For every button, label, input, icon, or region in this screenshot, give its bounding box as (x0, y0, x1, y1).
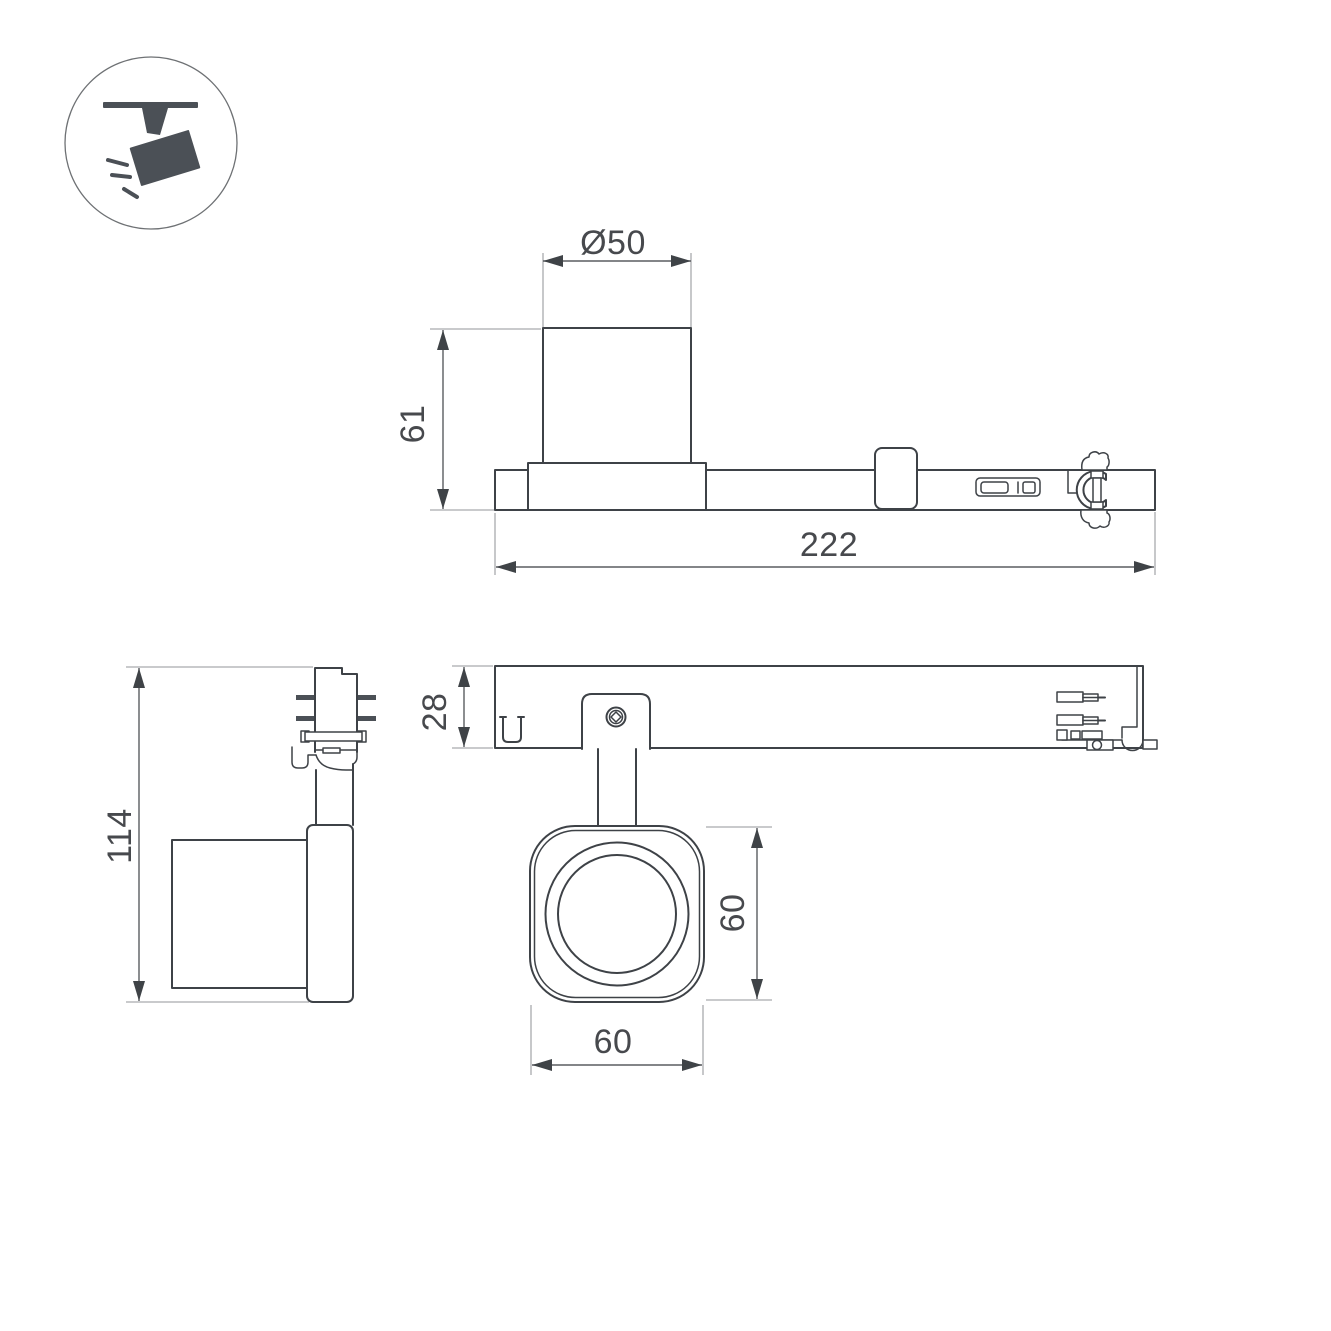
front-view-drawing: 60 60 (530, 826, 772, 1075)
dim-label-depth-28: 28 (416, 693, 454, 732)
end-view-drawing: 114 (101, 667, 376, 1002)
side-view-drawing: Ø50 61 222 (394, 224, 1155, 575)
dim-label-head-height-60: 60 (714, 894, 752, 933)
dim-label-length-222: 222 (800, 526, 858, 564)
plan-view-drawing: 28 (416, 666, 1157, 826)
dim-label-total-height-114: 114 (101, 808, 139, 864)
dimension-drawing-page: Ø50 61 222 (0, 0, 1331, 1331)
track-spotlight-icon (65, 57, 237, 229)
dim-label-diameter-50: Ø50 (580, 224, 646, 262)
dim-label-height-61: 61 (394, 405, 432, 444)
dim-label-head-width-60: 60 (594, 1023, 633, 1061)
